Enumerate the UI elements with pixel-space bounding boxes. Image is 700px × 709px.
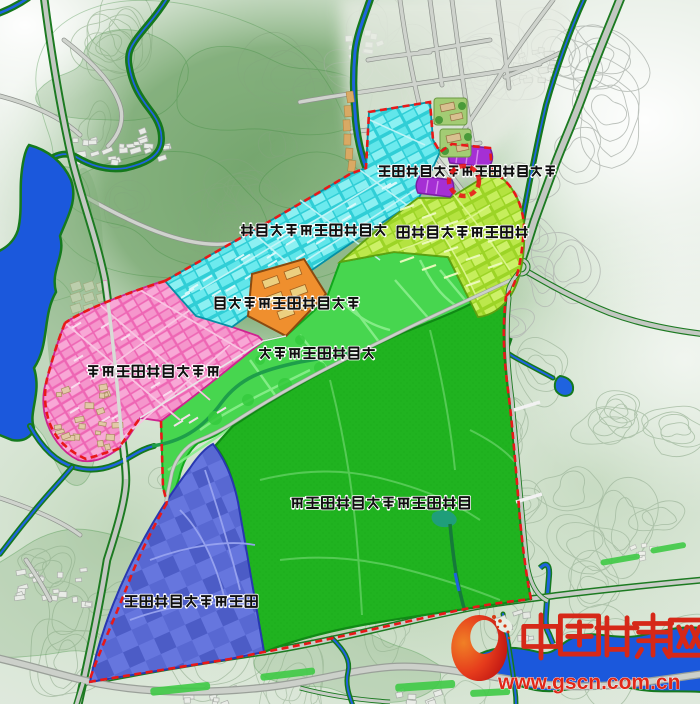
svg-text:www.gscn.com.cn: www.gscn.com.cn — [497, 671, 680, 694]
